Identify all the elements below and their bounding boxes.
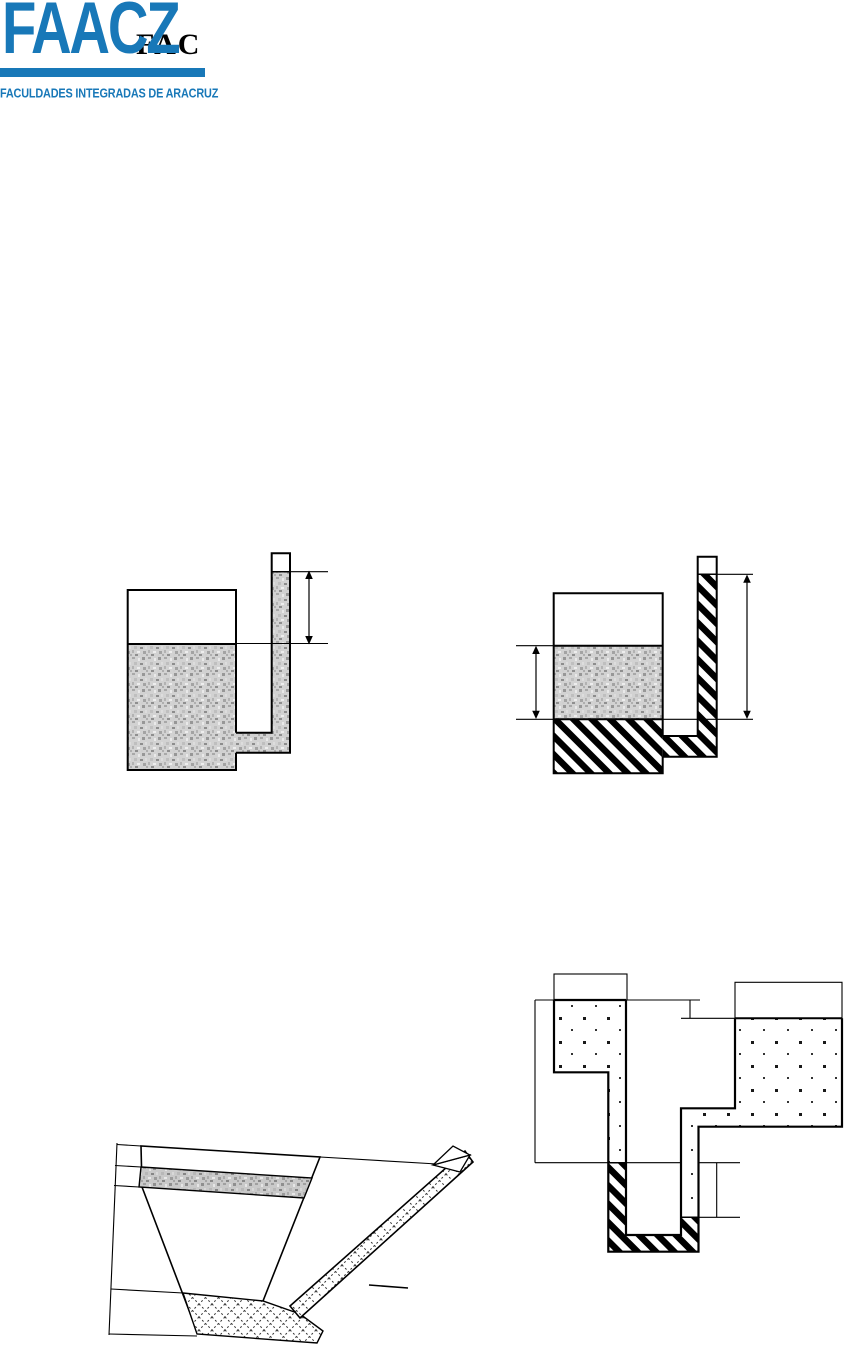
- lower-fluid-striped-tank: [554, 719, 663, 773]
- figure-u-tube-two-tanks: [530, 965, 844, 1260]
- faacz-logo: FAC FAACZ FACULDADES INTEGRADAS DE ARACR…: [0, 0, 230, 110]
- fluid-speckled-band: [139, 1167, 312, 1198]
- figure-tilted-funnel-inclined-tube: [95, 1135, 485, 1346]
- upper-fluid-speckled: [554, 646, 663, 720]
- logo-brand-text: FAACZ: [2, 0, 178, 66]
- left-height-dimension-arrow: [532, 646, 540, 719]
- logo-underline-bar: [0, 68, 205, 77]
- lower-fluid-striped-tube: [663, 574, 717, 756]
- right-dotted-fluid: [681, 1018, 842, 1217]
- height-dimension-arrow: [305, 571, 313, 645]
- figure-two-fluid-tank-manometer: [505, 545, 770, 785]
- short-reference-line: [369, 1285, 408, 1288]
- inclined-tube: [290, 1151, 473, 1318]
- figure-tank-with-riser-piezometer: [100, 545, 340, 780]
- fluid-speckled-body: [128, 572, 290, 770]
- document-page: FAC FAACZ FACULDADES INTEGRADAS DE ARACR…: [0, 0, 844, 1346]
- logo-subtitle-text: FACULDADES INTEGRADAS DE ARACRUZ: [0, 86, 218, 101]
- right-tank-top: [735, 982, 842, 1018]
- left-tank-top: [554, 974, 627, 1000]
- right-height-dimension-arrow: [743, 575, 751, 720]
- left-dotted-fluid: [554, 1000, 626, 1163]
- funnel-top-reference-line: [320, 1157, 437, 1164]
